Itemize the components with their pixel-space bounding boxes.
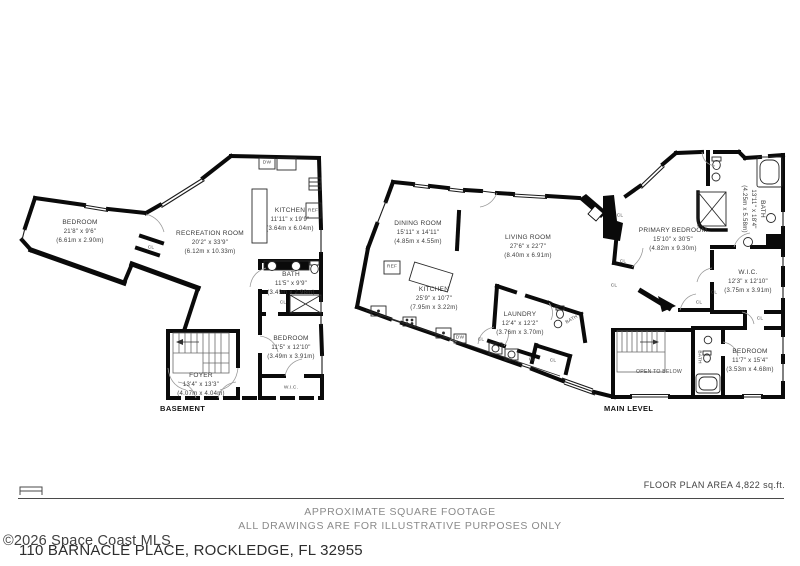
room-name: FOYER — [177, 371, 224, 381]
label-cl: CL — [757, 317, 764, 322]
room-label-main-kitchen: KITCHEN 25'9" x 10'7" (7.95m x 3.22m) — [410, 285, 457, 313]
room-dim-metric: (4.07m x 4.04m) — [177, 390, 224, 399]
label-cl: CL — [620, 260, 627, 265]
room-name: BEDROOM — [56, 218, 103, 228]
label-ref: REF — [387, 265, 397, 270]
room-dim-imperial: 15'10" x 30'5" — [639, 236, 708, 245]
room-dim-metric: (8.40m x 6.91m) — [504, 252, 551, 261]
label-ref: REF — [308, 209, 318, 214]
scale-bar-icon — [20, 487, 42, 495]
footer-divider — [18, 498, 784, 499]
label-cl: CL — [478, 338, 485, 343]
room-label-primary-bath: BATH 13'11" x 18'4" (4.25m x 5.58m) — [739, 185, 767, 232]
room-name: KITCHEN — [410, 285, 457, 295]
basement-stairs — [173, 333, 229, 373]
room-name: RECREATION ROOM — [176, 229, 244, 239]
room-label-laundry: LAUNDRY 12'4" x 12'2" (3.76m x 3.70m) — [496, 310, 543, 338]
room-name: W.I.C. — [724, 268, 771, 278]
room-dim-metric: (4.85m x 4.55m) — [394, 238, 442, 247]
main-fixtures — [366, 157, 782, 393]
room-dim-imperial: 11'7" x 15'4" — [726, 357, 773, 366]
disclaimer-square-footage: APPROXIMATE SQUARE FOOTAGE — [0, 506, 800, 518]
room-name: DINING ROOM — [394, 219, 442, 229]
room-name: KITCHEN — [266, 206, 313, 216]
caption-main-level: MAIN LEVEL — [604, 404, 653, 413]
floor-plan-area-text: FLOOR PLAN AREA 4,822 sq.ft. — [644, 480, 785, 490]
room-dim-imperial: 12'4" x 12'2" — [496, 320, 543, 329]
label-cl: CL — [280, 301, 287, 306]
label-wic-basement: W.I.C. — [284, 386, 298, 391]
label-dw: DW — [456, 336, 464, 341]
label-cl: CL — [617, 214, 624, 219]
label-cl: CL — [696, 301, 703, 306]
room-dim-imperial: 25'9" x 10'7" — [410, 295, 457, 304]
room-label-basement-bedroom-1: BEDROOM 21'8" x 9'6" (6.61m x 2.90m) — [56, 218, 103, 246]
room-dim-metric: (7.95m x 3.22m) — [410, 304, 457, 313]
room-dim-metric: (3.64m x 6.04m) — [266, 225, 313, 234]
room-dim-metric: (4.82m x 9.30m) — [639, 245, 708, 254]
room-label-recreation-room: RECREATION ROOM 20'2" x 33'9" (6.12m x 1… — [176, 229, 244, 257]
main-stairs — [617, 331, 665, 372]
disclaimer-illustrative: ALL DRAWINGS ARE FOR ILLUSTRATIVE PURPOS… — [0, 520, 800, 532]
room-name: PRIMARY BEDROOM — [639, 226, 708, 236]
room-dim-metric: (3.53m x 4.68m) — [726, 366, 773, 375]
room-name: BEDROOM — [267, 334, 314, 344]
room-label-basement-kitchen: KITCHEN 11'11" x 19'9" (3.64m x 6.04m) — [266, 206, 313, 234]
room-dim-metric: (3.49m x 3.91m) — [267, 353, 314, 362]
property-address: 110 BARNACLE PLACE, ROCKLEDGE, FL 32955 — [19, 542, 363, 559]
room-dim-metric: (6.61m x 2.90m) — [56, 237, 103, 246]
room-dim-imperial: 11'5" x 12'10" — [267, 344, 314, 353]
room-dim-imperial: 15'11" x 14'11" — [394, 229, 442, 238]
label-bath-vertical: BATH — [697, 350, 702, 363]
room-name: BATH — [757, 185, 767, 232]
room-label-dining-room: DINING ROOM 15'11" x 14'11" (4.85m x 4.5… — [394, 219, 442, 247]
room-dim-metric: (3.49m x 2.98m) — [267, 289, 314, 298]
room-dim-imperial: 20'2" x 33'9" — [176, 239, 244, 248]
label-open-to-below: OPEN TO BELOW — [636, 369, 682, 375]
room-label-basement-bath: BATH 11'5" x 9'9" (3.49m x 2.98m) — [267, 270, 314, 298]
room-dim-imperial: 11'11" x 19'9" — [266, 216, 313, 225]
room-label-foyer: FOYER 13'4" x 13'3" (4.07m x 4.04m) — [177, 371, 224, 399]
room-dim-metric: (3.75m x 3.91m) — [724, 287, 771, 296]
room-dim-metric: (3.76m x 3.70m) — [496, 329, 543, 338]
room-label-basement-bedroom-2: BEDROOM 11'5" x 12'10" (3.49m x 3.91m) — [267, 334, 314, 362]
room-label-primary-bedroom: PRIMARY BEDROOM 15'10" x 30'5" (4.82m x … — [639, 226, 708, 254]
room-name: BATH — [267, 270, 314, 280]
label-cl: CL — [611, 284, 618, 289]
room-dim-imperial: 11'5" x 9'9" — [267, 280, 314, 289]
room-dim-imperial: 12'3" x 12'10" — [724, 278, 771, 287]
label-cl: CL — [529, 358, 536, 363]
room-label-wic: W.I.C. 12'3" x 12'10" (3.75m x 3.91m) — [724, 268, 771, 296]
room-label-main-bedroom: BEDROOM 11'7" x 15'4" (3.53m x 4.68m) — [726, 347, 773, 375]
room-dim-imperial: 13'11" x 18'4" — [748, 185, 757, 232]
floor-plan-sheet: BEDROOM 21'8" x 9'6" (6.61m x 2.90m) REC… — [0, 0, 800, 566]
caption-basement: BASEMENT — [160, 404, 205, 413]
label-dw: DW — [263, 161, 271, 166]
room-dim-imperial: 13'4" x 13'3" — [177, 381, 224, 390]
room-name: LIVING ROOM — [504, 233, 551, 243]
room-dim-imperial: 21'8" x 9'6" — [56, 228, 103, 237]
room-dim-metric: (4.25m x 5.58m) — [739, 185, 748, 232]
label-cl: CL — [711, 291, 718, 296]
room-name: BEDROOM — [726, 347, 773, 357]
label-cl: CL — [550, 359, 557, 364]
room-name: LAUNDRY — [496, 310, 543, 320]
room-label-living-room: LIVING ROOM 27'6" x 22'7" (8.40m x 6.91m… — [504, 233, 551, 261]
room-dim-metric: (6.12m x 10.33m) — [176, 248, 244, 257]
label-cl: CL — [148, 246, 155, 251]
main-walls — [357, 152, 783, 397]
room-dim-imperial: 27'6" x 22'7" — [504, 243, 551, 252]
